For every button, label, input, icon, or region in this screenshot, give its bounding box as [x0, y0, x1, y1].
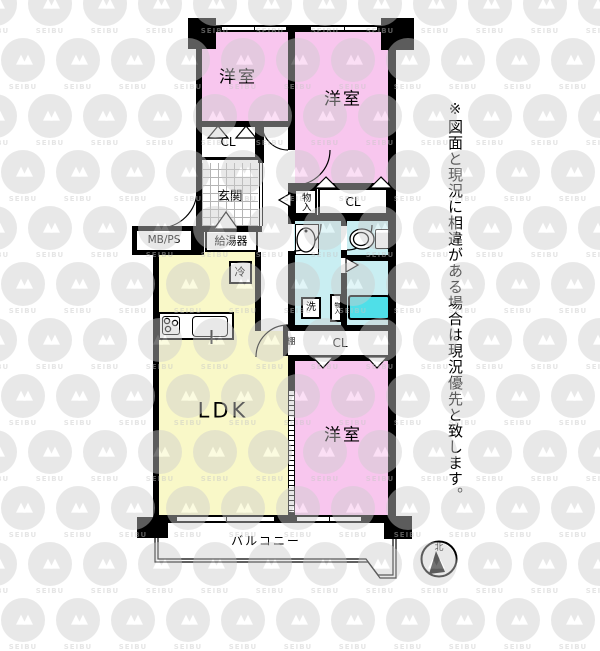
watermark-tree-icon: ▲▲: [496, 262, 540, 306]
watermark-tree-icon: ▲▲: [496, 150, 540, 194]
watermark-tree-icon: ▲▲: [166, 598, 210, 642]
watermark-logo: ▲▲SEIBU: [80, 542, 130, 595]
watermark-logo: ▲▲SEIBU: [0, 38, 48, 91]
watermark-logo: ▲▲SEIBU: [465, 318, 515, 371]
watermark-logo: ▲▲SEIBU: [493, 150, 543, 203]
watermark-logo: ▲▲SEIBU: [493, 262, 543, 315]
watermark-tree-icon: ▲▲: [578, 206, 600, 250]
label-monoire: 物入: [300, 193, 310, 212]
watermark-logo: ▲▲SEIBU: [25, 0, 75, 35]
balcony-door-window: [177, 515, 274, 523]
watermark-logo: ▲▲SEIBU: [53, 598, 103, 651]
watermark-logo: ▲▲SEIBU: [465, 542, 515, 595]
watermark-tree-icon: ▲▲: [28, 94, 72, 138]
watermark-brand: SEIBU: [520, 475, 570, 483]
watermark-logo: ▲▲SEIBU: [493, 38, 543, 91]
wall: [288, 25, 295, 150]
watermark-tree-icon: ▲▲: [441, 598, 485, 642]
watermark-tree-icon: ▲▲: [496, 374, 540, 418]
watermark-brand: SEIBU: [25, 475, 75, 483]
watermark-tree-icon: ▲▲: [56, 486, 100, 530]
watermark-brand: SEIBU: [53, 307, 103, 315]
watermark-logo: ▲▲SEIBU: [520, 318, 570, 371]
watermark-logo: ▲▲SEIBU: [383, 598, 433, 651]
watermark-logo: ▲▲SEIBU: [25, 542, 75, 595]
watermark-tree-icon: ▲▲: [83, 430, 127, 474]
compass-circle: [422, 542, 457, 577]
watermark-logo: ▲▲SEIBU: [0, 262, 48, 315]
watermark-logo: ▲▲SEIBU: [53, 374, 103, 427]
watermark-brand: SEIBU: [135, 139, 185, 147]
pillar: [137, 517, 168, 538]
watermark-tree-icon: ▲▲: [523, 318, 567, 362]
watermark-tree-icon: ▲▲: [468, 318, 512, 362]
watermark-brand: SEIBU: [548, 419, 598, 427]
watermark-tree-icon: ▲▲: [221, 598, 265, 642]
watermark-brand: SEIBU: [465, 587, 515, 595]
label-water-heater: 給湯器: [215, 236, 248, 247]
watermark-tree-icon: ▲▲: [28, 430, 72, 474]
watermark-tree-icon: ▲▲: [551, 150, 595, 194]
watermark-tree-icon: ▲▲: [138, 94, 182, 138]
watermark-brand: SEIBU: [438, 83, 488, 91]
watermark-brand: SEIBU: [465, 363, 515, 371]
watermark-logo: ▲▲SEIBU: [163, 598, 213, 651]
watermark-logo: ▲▲SEIBU: [0, 374, 48, 427]
watermark-logo: ▲▲SEIBU: [53, 262, 103, 315]
sliding-door-track: [288, 390, 295, 512]
door-arc-entrance: [159, 190, 197, 228]
watermark-tree-icon: ▲▲: [56, 374, 100, 418]
washbasin-counter: [295, 224, 319, 255]
watermark-logo: ▲▲SEIBU: [520, 206, 570, 259]
watermark-logo: ▲▲SEIBU: [493, 486, 543, 539]
watermark-brand: SEIBU: [218, 643, 268, 651]
watermark-brand: SEIBU: [548, 643, 598, 651]
watermark-tree-icon: ▲▲: [28, 542, 72, 586]
watermark-brand: SEIBU: [0, 475, 20, 483]
watermark-tree-icon: ▲▲: [1, 486, 45, 530]
watermark-tree-icon: ▲▲: [523, 542, 567, 586]
balcony-rail-outer: [155, 523, 396, 578]
door-arc-bedroom1: [262, 124, 288, 150]
watermark-brand: SEIBU: [548, 307, 598, 315]
watermark-tree-icon: ▲▲: [578, 430, 600, 474]
watermark-logo: ▲▲SEIBU: [108, 150, 158, 203]
watermark-brand: SEIBU: [575, 363, 600, 371]
watermark-tree-icon: ▲▲: [111, 598, 155, 642]
watermark-tree-icon: ▲▲: [468, 542, 512, 586]
watermark-brand: SEIBU: [0, 307, 48, 315]
watermark-logo: ▲▲SEIBU: [135, 542, 185, 595]
watermark-brand: SEIBU: [25, 587, 75, 595]
watermark-tree-icon: ▲▲: [1, 38, 45, 82]
genkan-step-line: [259, 163, 260, 226]
watermark-tree-icon: ▲▲: [56, 150, 100, 194]
watermark-logo: ▲▲SEIBU: [218, 598, 268, 651]
watermark-logo: ▲▲SEIBU: [575, 542, 600, 595]
watermark-tree-icon: ▲▲: [551, 38, 595, 82]
watermark-brand: SEIBU: [0, 251, 20, 259]
watermark-brand: SEIBU: [25, 363, 75, 371]
label-genkan: 玄関: [217, 190, 242, 203]
watermark-tree-icon: ▲▲: [413, 0, 457, 26]
room-label-bedroom-bottom: 洋室: [324, 428, 362, 445]
watermark-tree-icon: ▲▲: [83, 0, 127, 26]
watermark-brand: SEIBU: [53, 419, 103, 427]
watermark-logo: ▲▲SEIBU: [25, 430, 75, 483]
watermark-logo: ▲▲SEIBU: [548, 150, 598, 203]
watermark-logo: ▲▲SEIBU: [245, 542, 295, 595]
watermark-brand: SEIBU: [25, 139, 75, 147]
watermark-brand: SEIBU: [493, 419, 543, 427]
watermark-brand: SEIBU: [163, 531, 213, 539]
watermark-tree-icon: ▲▲: [468, 206, 512, 250]
watermark-tree-icon: ▲▲: [248, 0, 292, 26]
watermark-tree-icon: ▲▲: [111, 262, 155, 306]
watermark-brand: SEIBU: [135, 587, 185, 595]
floor-plan: 北 洋室 洋室 洋室 LDK バルコニー CL CL CL 物入 棚 物入 玄関…: [0, 0, 600, 600]
watermark-tree-icon: ▲▲: [111, 150, 155, 194]
watermark-logo: ▲▲SEIBU: [135, 0, 185, 35]
watermark-logo: ▲▲SEIBU: [135, 94, 185, 147]
wall: [288, 183, 392, 189]
watermark-tree-icon: ▲▲: [56, 38, 100, 82]
watermark-brand: SEIBU: [0, 587, 20, 595]
watermark-logo: ▲▲SEIBU: [0, 150, 48, 203]
label-washer: 洗: [306, 303, 316, 313]
watermark-brand: SEIBU: [548, 83, 598, 91]
watermark-logo: ▲▲SEIBU: [0, 318, 20, 371]
watermark-brand: SEIBU: [0, 419, 48, 427]
watermark-brand: SEIBU: [493, 643, 543, 651]
watermark-brand: SEIBU: [0, 531, 48, 539]
wall: [288, 215, 392, 221]
watermark-tree-icon: ▲▲: [523, 430, 567, 474]
watermark-tree-icon: ▲▲: [551, 598, 595, 642]
watermark-tree-icon: ▲▲: [413, 542, 457, 586]
watermark-brand: SEIBU: [465, 251, 515, 259]
watermark-logo: ▲▲SEIBU: [575, 430, 600, 483]
watermark-logo: ▲▲SEIBU: [575, 318, 600, 371]
watermark-tree-icon: ▲▲: [1, 374, 45, 418]
watermark-tree-icon: ▲▲: [56, 262, 100, 306]
watermark-brand: SEIBU: [108, 307, 158, 315]
watermark-tree-icon: ▲▲: [0, 206, 17, 250]
wall: [196, 121, 295, 127]
watermark-brand: SEIBU: [53, 643, 103, 651]
watermark-brand: SEIBU: [465, 475, 515, 483]
room-label-bedroom-top-right: 洋室: [324, 92, 362, 109]
watermark-logo: ▲▲SEIBU: [80, 94, 130, 147]
wall: [196, 25, 202, 232]
watermark-brand: SEIBU: [0, 195, 48, 203]
watermark-logo: ▲▲SEIBU: [520, 94, 570, 147]
watermark-tree-icon: ▲▲: [0, 94, 17, 138]
watermark-tree-icon: ▲▲: [193, 542, 237, 586]
pillar: [381, 18, 414, 50]
watermark-tree-icon: ▲▲: [578, 94, 600, 138]
watermark-tree-icon: ▲▲: [496, 598, 540, 642]
label-tana: 棚: [287, 338, 296, 347]
watermark-logo: ▲▲SEIBU: [548, 486, 598, 539]
watermark-tree-icon: ▲▲: [0, 0, 17, 26]
wall: [288, 251, 295, 331]
watermark-tree-icon: ▲▲: [358, 542, 402, 586]
genkan-step-line: [262, 163, 263, 226]
watermark-logo: ▲▲SEIBU: [575, 94, 600, 147]
watermark-brand: SEIBU: [328, 531, 378, 539]
watermark-tree-icon: ▲▲: [83, 206, 127, 250]
kitchen-stove: [162, 316, 180, 335]
watermark-tree-icon: ▲▲: [551, 374, 595, 418]
room-ldk: [159, 331, 288, 515]
watermark-brand: SEIBU: [493, 307, 543, 315]
watermark-brand: SEIBU: [53, 195, 103, 203]
watermark-logo: ▲▲SEIBU: [108, 262, 158, 315]
watermark-brand: SEIBU: [53, 83, 103, 91]
watermark-brand: SEIBU: [438, 531, 488, 539]
wall: [283, 325, 392, 331]
watermark-tree-icon: ▲▲: [28, 318, 72, 362]
watermark-logo: ▲▲SEIBU: [108, 598, 158, 651]
watermark-brand: SEIBU: [575, 251, 600, 259]
watermark-brand: SEIBU: [80, 139, 130, 147]
watermark-logo: ▲▲SEIBU: [53, 486, 103, 539]
door-gap: [341, 226, 347, 250]
watermark-logo: ▲▲SEIBU: [0, 430, 20, 483]
watermark-brand: SEIBU: [53, 531, 103, 539]
label-mbps: MB/PS: [148, 235, 181, 246]
watermark-logo: ▲▲SEIBU: [493, 374, 543, 427]
watermark-brand: SEIBU: [575, 139, 600, 147]
watermark-tree-icon: ▲▲: [0, 430, 17, 474]
watermark-brand: SEIBU: [548, 531, 598, 539]
watermark-brand: SEIBU: [520, 251, 570, 259]
balcony-rail-inner: [158, 523, 393, 575]
watermark-brand: SEIBU: [245, 587, 295, 595]
watermark-tree-icon: ▲▲: [468, 94, 512, 138]
watermark-brand: SEIBU: [0, 139, 20, 147]
watermark-logo: ▲▲SEIBU: [520, 542, 570, 595]
watermark-brand: SEIBU: [575, 475, 600, 483]
wall: [388, 25, 396, 523]
watermark-logo: ▲▲SEIBU: [548, 374, 598, 427]
watermark-brand: SEIBU: [328, 643, 378, 651]
watermark-logo: ▲▲SEIBU: [548, 38, 598, 91]
watermark-logo: ▲▲SEIBU: [53, 150, 103, 203]
watermark-brand: SEIBU: [0, 27, 20, 35]
watermark-brand: SEIBU: [163, 643, 213, 651]
watermark-tree-icon: ▲▲: [303, 542, 347, 586]
label-cl2: CL: [345, 196, 360, 208]
watermark-brand: SEIBU: [108, 419, 158, 427]
watermark-tree-icon: ▲▲: [56, 598, 100, 642]
watermark-logo: ▲▲SEIBU: [410, 542, 460, 595]
watermark-logo: ▲▲SEIBU: [520, 430, 570, 483]
watermark-brand: SEIBU: [25, 27, 75, 35]
watermark-logo: ▲▲SEIBU: [465, 0, 515, 35]
wall: [255, 252, 261, 331]
watermark-brand: SEIBU: [80, 363, 130, 371]
watermark-brand: SEIBU: [108, 195, 158, 203]
watermark-logo: ▲▲SEIBU: [438, 598, 488, 651]
watermark-logo: ▲▲SEIBU: [575, 206, 600, 259]
watermark-brand: SEIBU: [273, 643, 323, 651]
room-label-balcony: バルコニー: [231, 535, 301, 547]
watermark-brand: SEIBU: [80, 251, 130, 259]
watermark-tree-icon: ▲▲: [386, 598, 430, 642]
watermark-brand: SEIBU: [300, 587, 350, 595]
label-small-storage: 物入: [333, 302, 339, 314]
watermark-brand: SEIBU: [575, 27, 600, 35]
watermark-tree-icon: ▲▲: [1, 262, 45, 306]
watermark-brand: SEIBU: [108, 83, 158, 91]
watermark-logo: ▲▲SEIBU: [438, 38, 488, 91]
window: [311, 25, 377, 32]
watermark-tree-icon: ▲▲: [523, 0, 567, 26]
watermark-brand: SEIBU: [575, 587, 600, 595]
watermark-logo: ▲▲SEIBU: [0, 206, 20, 259]
room-bathroom: [347, 261, 388, 325]
watermark-tree-icon: ▲▲: [111, 38, 155, 82]
door-gap: [341, 258, 347, 273]
wall: [153, 229, 159, 523]
watermark-brand: SEIBU: [465, 139, 515, 147]
watermark-logo: ▲▲SEIBU: [273, 598, 323, 651]
watermark-tree-icon: ▲▲: [83, 542, 127, 586]
watermark-logo: ▲▲SEIBU: [0, 598, 48, 651]
watermark-logo: ▲▲SEIBU: [548, 598, 598, 651]
watermark-logo: ▲▲SEIBU: [0, 486, 48, 539]
wall: [258, 121, 264, 163]
watermark-tree-icon: ▲▲: [303, 0, 347, 26]
watermark-brand: SEIBU: [80, 27, 130, 35]
watermark-brand: SEIBU: [190, 587, 240, 595]
pillar: [188, 18, 216, 49]
watermark-tree-icon: ▲▲: [111, 374, 155, 418]
watermark-brand: SEIBU: [383, 643, 433, 651]
watermark-logo: ▲▲SEIBU: [0, 542, 20, 595]
watermark-brand: SEIBU: [520, 363, 570, 371]
watermark-tree-icon: ▲▲: [551, 486, 595, 530]
watermark-tree-icon: ▲▲: [1, 150, 45, 194]
watermark-brand: SEIBU: [520, 139, 570, 147]
watermark-tree-icon: ▲▲: [578, 542, 600, 586]
watermark-tree-icon: ▲▲: [496, 38, 540, 82]
watermark-brand: SEIBU: [25, 251, 75, 259]
watermark-logo: ▲▲SEIBU: [548, 262, 598, 315]
watermark-tree-icon: ▲▲: [248, 542, 292, 586]
balcony-door-window: [297, 515, 361, 523]
watermark-logo: ▲▲SEIBU: [575, 0, 600, 35]
watermark-brand: SEIBU: [80, 587, 130, 595]
watermark-tree-icon: ▲▲: [551, 262, 595, 306]
watermark-logo: ▲▲SEIBU: [25, 94, 75, 147]
watermark-logo: ▲▲SEIBU: [80, 430, 130, 483]
room-label-bedroom-top-left: 洋室: [219, 70, 257, 87]
watermark-tree-icon: ▲▲: [578, 0, 600, 26]
compass-needle: [429, 551, 445, 574]
watermark-tree-icon: ▲▲: [0, 542, 17, 586]
watermark-logo: ▲▲SEIBU: [493, 598, 543, 651]
watermark-tree-icon: ▲▲: [468, 0, 512, 26]
watermark-brand: SEIBU: [493, 531, 543, 539]
watermark-tree-icon: ▲▲: [523, 206, 567, 250]
watermark-logo: ▲▲SEIBU: [80, 318, 130, 371]
watermark-logo: ▲▲SEIBU: [108, 38, 158, 91]
wall: [288, 355, 392, 361]
watermark-brand: SEIBU: [548, 195, 598, 203]
watermark-brand: SEIBU: [80, 475, 130, 483]
disclaimer-text: ※図面と現況に相違がある場合は現況優先と致します。: [430, 100, 466, 510]
watermark-tree-icon: ▲▲: [28, 0, 72, 26]
watermark-tree-icon: ▲▲: [441, 38, 485, 82]
watermark-tree-icon: ▲▲: [83, 94, 127, 138]
watermark-logo: ▲▲SEIBU: [465, 94, 515, 147]
watermark-logo: ▲▲SEIBU: [410, 0, 460, 35]
wall: [196, 226, 262, 232]
watermark-tree-icon: ▲▲: [496, 486, 540, 530]
watermark-brand: SEIBU: [135, 27, 185, 35]
label-cl1: CL: [220, 136, 235, 148]
watermark-brand: SEIBU: [438, 643, 488, 651]
watermark-brand: SEIBU: [0, 363, 20, 371]
watermark-logo: ▲▲SEIBU: [300, 542, 350, 595]
watermark-tree-icon: ▲▲: [331, 598, 375, 642]
watermark-tree-icon: ▲▲: [138, 0, 182, 26]
watermark-brand: SEIBU: [493, 195, 543, 203]
watermark-tree-icon: ▲▲: [578, 318, 600, 362]
watermark-brand: SEIBU: [0, 83, 48, 91]
window: [222, 25, 286, 32]
watermark-logo: ▲▲SEIBU: [80, 0, 130, 35]
watermark-brand: SEIBU: [520, 587, 570, 595]
watermark-tree-icon: ▲▲: [523, 94, 567, 138]
watermark-logo: ▲▲SEIBU: [25, 318, 75, 371]
pillar: [384, 516, 412, 539]
watermark-tree-icon: ▲▲: [468, 430, 512, 474]
label-cl3: CL: [332, 337, 347, 349]
watermark-logo: ▲▲SEIBU: [355, 542, 405, 595]
watermark-logo: ▲▲SEIBU: [465, 430, 515, 483]
wall: [341, 255, 392, 261]
kitchen-sink: [192, 316, 228, 337]
watermark-logo: ▲▲SEIBU: [25, 206, 75, 259]
watermark-tree-icon: ▲▲: [1, 598, 45, 642]
watermark-brand: SEIBU: [0, 643, 48, 651]
watermark-tree-icon: ▲▲: [83, 318, 127, 362]
watermark-logo: ▲▲SEIBU: [0, 94, 20, 147]
watermark-tree-icon: ▲▲: [138, 542, 182, 586]
watermark-tree-icon: ▲▲: [28, 206, 72, 250]
compass: 北: [422, 542, 457, 577]
watermark-logo: ▲▲SEIBU: [53, 38, 103, 91]
watermark-brand: SEIBU: [493, 83, 543, 91]
watermark-brand: SEIBU: [465, 27, 515, 35]
label-fridge: 冷: [235, 267, 246, 278]
compass-north-label: 北: [434, 542, 443, 553]
watermark-logo: ▲▲SEIBU: [80, 206, 130, 259]
watermark-logo: ▲▲SEIBU: [108, 374, 158, 427]
watermark-logo: ▲▲SEIBU: [520, 0, 570, 35]
watermark-logo: ▲▲SEIBU: [465, 206, 515, 259]
room-label-ldk: LDK: [198, 401, 249, 422]
watermark-brand: SEIBU: [108, 643, 158, 651]
watermark-tree-icon: ▲▲: [276, 598, 320, 642]
watermark-brand: SEIBU: [355, 587, 405, 595]
watermark-brand: SEIBU: [410, 27, 460, 35]
